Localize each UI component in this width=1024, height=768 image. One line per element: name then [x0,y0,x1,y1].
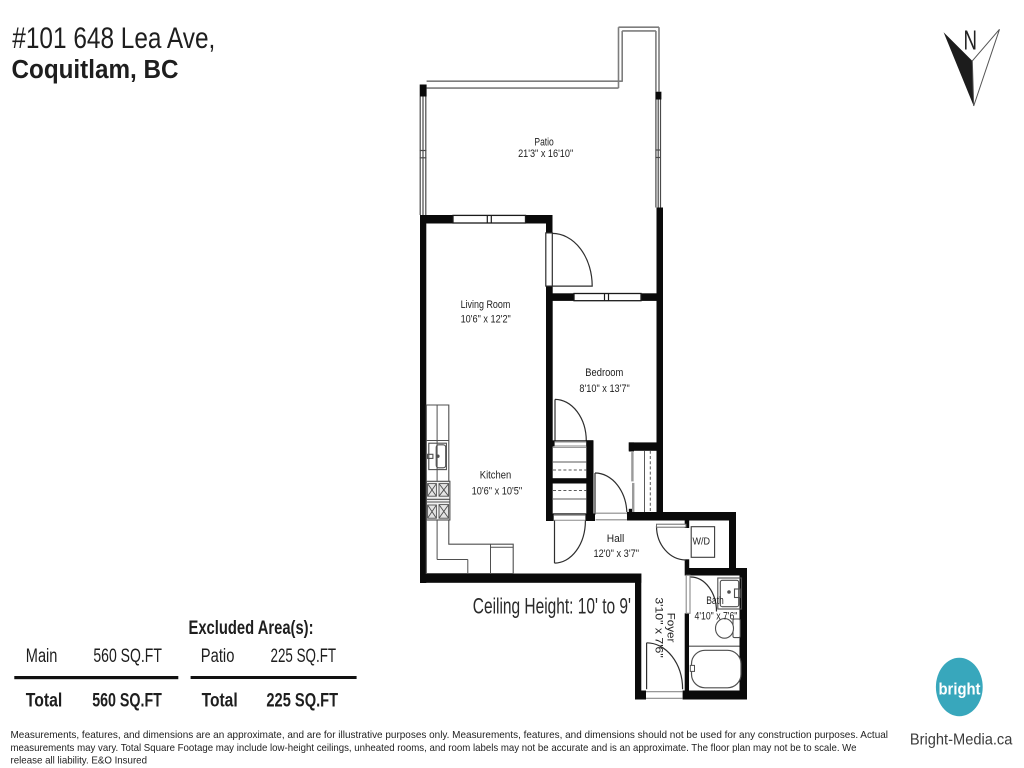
svg-text:Bright-Media.ca: Bright-Media.ca [910,732,1013,749]
svg-text:Excluded Area(s):: Excluded Area(s): [189,617,314,639]
svg-text:W/D: W/D [693,537,711,548]
svg-text:N: N [964,24,978,55]
svg-text:Total: Total [26,690,63,711]
svg-text:21'3" x 16'10": 21'3" x 16'10" [518,148,573,160]
svg-text:8'10" x 13'7": 8'10" x 13'7" [579,383,629,395]
svg-text:10'6" x 10'5": 10'6" x 10'5" [472,486,523,498]
svg-text:12'0" x 3'7": 12'0" x 3'7" [594,548,640,560]
svg-text:Measurements, features, and di: Measurements, features, and dimensions a… [11,730,889,741]
svg-text:Kitchen: Kitchen [480,469,511,481]
svg-text:3'10" x 7'6": 3'10" x 7'6" [653,597,665,657]
svg-text:Coquitlam, BC: Coquitlam, BC [12,56,179,84]
svg-text:Total: Total [202,690,238,711]
svg-text:Patio: Patio [534,137,553,149]
svg-text:Patio: Patio [201,646,235,667]
svg-text:560 SQ.FT: 560 SQ.FT [92,690,162,711]
svg-text:Bedroom: Bedroom [585,367,623,379]
svg-text:Bath: Bath [706,595,724,607]
svg-text:4'10" x 7'6": 4'10" x 7'6" [695,611,738,623]
svg-text:release all liability. E&O Ins: release all liability. E&O Insured [11,756,148,767]
svg-text:10'6" x 12'2": 10'6" x 12'2" [461,313,511,325]
svg-text:#101 648 Lea Ave,: #101 648 Lea Ave, [12,22,215,55]
svg-text:Hall: Hall [607,533,625,545]
svg-text:225 SQ.FT: 225 SQ.FT [266,690,338,711]
svg-text:Main: Main [26,646,58,667]
svg-text:bright: bright [939,681,981,699]
svg-text:Ceiling Height: 10' to 9': Ceiling Height: 10' to 9' [473,594,631,619]
svg-text:Living Room: Living Room [461,299,511,311]
svg-text:Foyer: Foyer [665,613,677,643]
svg-text:560 SQ.FT: 560 SQ.FT [93,646,162,667]
svg-text:measurements may vary. Total S: measurements may vary. Total Square Foot… [11,743,857,754]
svg-text:225 SQ.FT: 225 SQ.FT [271,646,337,667]
